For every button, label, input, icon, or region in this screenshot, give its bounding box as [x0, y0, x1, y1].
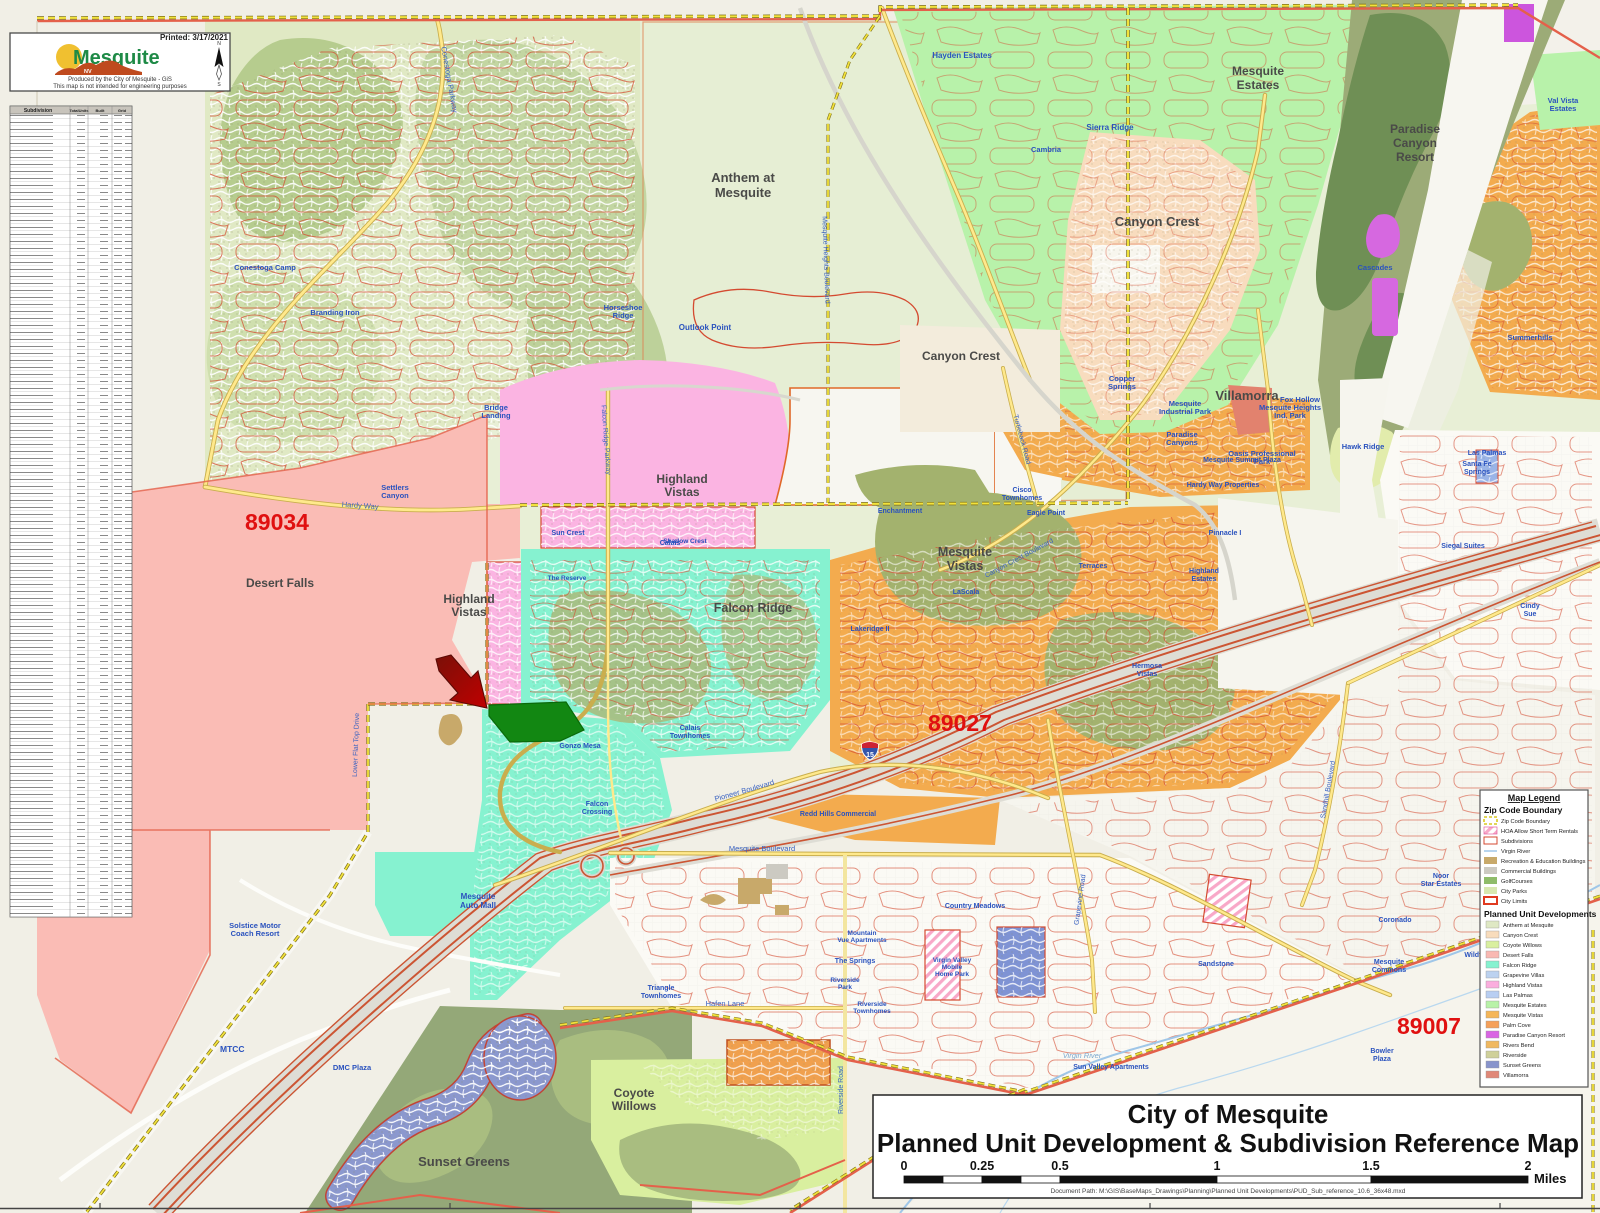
svg-text:Planned Unit Development & Sub: Planned Unit Development & Subdivision R… — [877, 1128, 1579, 1158]
svg-text:0.5: 0.5 — [1051, 1159, 1068, 1173]
svg-text:Crossing: Crossing — [582, 809, 612, 816]
svg-text:Cindy: Cindy — [1520, 603, 1540, 610]
svg-text:1: 1 — [1214, 1159, 1221, 1173]
svg-text:Bowler: Bowler — [1370, 1048, 1394, 1055]
svg-text:Hafen Lane: Hafen Lane — [706, 999, 745, 1008]
svg-text:Country Meadows: Country Meadows — [945, 903, 1005, 910]
svg-text:Falcon Ridge: Falcon Ridge — [714, 601, 793, 615]
svg-text:Highland: Highland — [443, 592, 494, 606]
svg-text:The Springs: The Springs — [835, 958, 876, 965]
svg-text:TotalUnits: TotalUnits — [69, 108, 89, 113]
svg-text:Sue: Sue — [1524, 611, 1537, 618]
svg-text:Hardy Way Properties: Hardy Way Properties — [1187, 482, 1260, 489]
svg-text:Coyote: Coyote — [614, 1086, 655, 1100]
svg-text:Grid: Grid — [118, 108, 127, 113]
svg-text:Calais: Calais — [680, 725, 701, 732]
svg-text:Vistas: Vistas — [451, 605, 486, 619]
svg-text:Townhomes: Townhomes — [1002, 495, 1042, 502]
svg-text:City of Mesquite: City of Mesquite — [1128, 1099, 1329, 1129]
svg-text:Ridge: Ridge — [613, 311, 634, 320]
svg-text:Virgin River: Virgin River — [1501, 849, 1530, 855]
svg-text:Cisco: Cisco — [1012, 487, 1031, 494]
svg-text:Sandstone: Sandstone — [1198, 961, 1234, 968]
svg-text:GolfCourses: GolfCourses — [1501, 879, 1533, 885]
svg-text:Falcon: Falcon — [586, 801, 609, 808]
svg-text:Mesquite Vistas: Mesquite Vistas — [1503, 1013, 1543, 1019]
svg-text:Produced by the City of Mesqui: Produced by the City of Mesquite - GiS — [68, 77, 172, 83]
svg-text:0.25: 0.25 — [970, 1159, 994, 1173]
svg-text:Noor: Noor — [1433, 873, 1450, 880]
svg-text:NV: NV — [84, 69, 92, 75]
svg-text:Villamorra: Villamorra — [1503, 1073, 1529, 1079]
svg-text:Springs: Springs — [1464, 469, 1490, 476]
svg-text:Redd Hills Commercial: Redd Hills Commercial — [800, 811, 876, 818]
svg-text:Canyon Crest: Canyon Crest — [1503, 933, 1538, 939]
svg-text:Falcon Ridge: Falcon Ridge — [1503, 963, 1537, 969]
svg-text:Canyon Crest: Canyon Crest — [922, 349, 1000, 363]
svg-text:Enchantment: Enchantment — [878, 508, 923, 515]
svg-text:Plaza: Plaza — [1373, 1056, 1391, 1063]
svg-text:Anthem at: Anthem at — [711, 170, 775, 185]
svg-text:Document Path: M:\GIS\BaseMaps: Document Path: M:\GIS\BaseMaps_Drawings\… — [1051, 1188, 1406, 1195]
svg-text:Star Estates: Star Estates — [1421, 881, 1462, 888]
svg-text:Las Palmas: Las Palmas — [1468, 450, 1507, 457]
svg-text:Conestoga Camp: Conestoga Camp — [234, 263, 296, 272]
svg-text:MTCC: MTCC — [220, 1044, 245, 1054]
svg-text:Desert Falls: Desert Falls — [1503, 953, 1533, 959]
svg-text:Paradise Canyon Resort: Paradise Canyon Resort — [1503, 1033, 1565, 1039]
svg-text:Zip Code Boundary: Zip Code Boundary — [1484, 805, 1563, 815]
svg-text:Gonzo Mesa: Gonzo Mesa — [559, 743, 600, 750]
svg-text:89027: 89027 — [928, 710, 992, 736]
svg-text:Vistas: Vistas — [1137, 671, 1158, 678]
svg-text:The Reserve: The Reserve — [548, 575, 587, 582]
svg-text:Ind. Park: Ind. Park — [1274, 411, 1307, 420]
svg-text:Riverside: Riverside — [857, 1001, 887, 1008]
svg-text:City Limits: City Limits — [1501, 899, 1527, 905]
svg-text:Resort: Resort — [1396, 150, 1434, 164]
svg-text:Rivers Bend: Rivers Bend — [1503, 1043, 1534, 1049]
svg-text:This map is not intended for e: This map is not intended for engineering… — [53, 84, 186, 90]
svg-text:Mesquite: Mesquite — [461, 892, 496, 901]
svg-text:HOA Allow Short Term Rentals: HOA Allow Short Term Rentals — [1501, 829, 1578, 835]
svg-text:Mesquite: Mesquite — [938, 545, 992, 559]
svg-text:Map Legend: Map Legend — [1508, 793, 1561, 803]
svg-text:Canyon Crest: Canyon Crest — [1115, 214, 1200, 229]
svg-text:Mountain: Mountain — [848, 930, 877, 937]
svg-text:Palm Cove: Palm Cove — [1503, 1023, 1531, 1029]
svg-text:Highland Vistas: Highland Vistas — [1503, 983, 1543, 989]
svg-text:Estates: Estates — [1192, 576, 1217, 583]
svg-text:Townhomes: Townhomes — [670, 733, 710, 740]
svg-text:Cambria: Cambria — [1031, 145, 1062, 154]
svg-text:Triangle: Triangle — [648, 985, 675, 992]
svg-text:Virgin River: Virgin River — [1063, 1051, 1102, 1060]
svg-text:Shadow Crest: Shadow Crest — [663, 538, 707, 545]
svg-text:15: 15 — [866, 752, 874, 759]
svg-text:Eagle Point: Eagle Point — [1027, 510, 1066, 517]
svg-text:Canyon: Canyon — [1393, 136, 1437, 150]
svg-text:Auto Mall: Auto Mall — [460, 901, 496, 910]
svg-text:Hermosa: Hermosa — [1132, 663, 1162, 670]
svg-text:Coach Resort: Coach Resort — [231, 929, 280, 938]
svg-text:Canyons: Canyons — [1166, 438, 1198, 447]
svg-text:89034: 89034 — [245, 509, 309, 535]
svg-text:Cascades: Cascades — [1357, 263, 1392, 272]
svg-text:1.5: 1.5 — [1362, 1159, 1379, 1173]
svg-text:Villamorra: Villamorra — [1215, 388, 1279, 403]
svg-text:N: N — [217, 41, 221, 47]
svg-text:Las Palmas: Las Palmas — [1503, 993, 1533, 999]
svg-text:89007: 89007 — [1397, 1013, 1461, 1039]
svg-text:Summerhills: Summerhills — [1507, 333, 1552, 342]
svg-text:Mesquite Boulevard: Mesquite Boulevard — [729, 844, 795, 853]
svg-text:Built: Built — [96, 108, 106, 113]
svg-text:Subdivision: Subdivision — [24, 108, 52, 114]
svg-text:Canyon: Canyon — [381, 491, 409, 500]
svg-text:Grapevine Villas: Grapevine Villas — [1503, 973, 1544, 979]
svg-text:Vistas: Vistas — [947, 559, 984, 573]
svg-text:2: 2 — [1525, 1159, 1532, 1173]
svg-text:Highland: Highland — [656, 472, 707, 486]
svg-text:Park: Park — [838, 984, 852, 991]
svg-text:Mesquite: Mesquite — [1374, 959, 1404, 966]
svg-text:Mobile: Mobile — [942, 964, 963, 971]
svg-text:0: 0 — [901, 1159, 908, 1173]
svg-text:Coronado: Coronado — [1378, 917, 1411, 924]
svg-text:Coyote Willows: Coyote Willows — [1503, 943, 1542, 949]
svg-text:Recreation & Education Buildin: Recreation & Education Buildings — [1501, 859, 1586, 865]
svg-text:Vistas: Vistas — [664, 485, 699, 499]
svg-text:Miles: Miles — [1534, 1171, 1567, 1186]
svg-text:Estates: Estates — [1237, 78, 1280, 92]
svg-text:Terraces: Terraces — [1079, 563, 1108, 570]
svg-text:Zip Code Boundary: Zip Code Boundary — [1501, 819, 1550, 825]
svg-text:DMC Plaza: DMC Plaza — [333, 1063, 372, 1072]
svg-text:Santa Fe: Santa Fe — [1462, 461, 1491, 468]
svg-text:Townhomes: Townhomes — [641, 993, 681, 1000]
svg-text:Mesquite: Mesquite — [1232, 64, 1284, 78]
svg-text:Industrial Park: Industrial Park — [1159, 407, 1212, 416]
svg-text:Pinnacle I: Pinnacle I — [1209, 530, 1242, 537]
svg-text:Sierra Ridge: Sierra Ridge — [1086, 123, 1134, 132]
svg-text:Desert Falls: Desert Falls — [246, 576, 314, 590]
svg-text:Landing: Landing — [481, 411, 511, 420]
svg-text:Subdivisions: Subdivisions — [1501, 839, 1533, 845]
svg-text:Virgin Valley: Virgin Valley — [933, 957, 972, 964]
svg-text:Sun Valley Apartments: Sun Valley Apartments — [1073, 1064, 1149, 1071]
svg-text:Sun Crest: Sun Crest — [551, 530, 585, 537]
svg-text:Outlook Point: Outlook Point — [679, 323, 732, 332]
svg-text:Commercial Buildings: Commercial Buildings — [1501, 869, 1556, 875]
svg-text:Anthem at Mesquite: Anthem at Mesquite — [1503, 923, 1554, 929]
svg-text:Hayden Estates: Hayden Estates — [932, 51, 992, 60]
svg-text:Paradise: Paradise — [1390, 122, 1440, 136]
svg-text:Commons: Commons — [1372, 967, 1406, 974]
svg-text:Springs: Springs — [1108, 382, 1136, 391]
svg-text:Sunset Greens: Sunset Greens — [1503, 1063, 1541, 1069]
svg-text:Vue Apartments: Vue Apartments — [837, 937, 887, 944]
svg-text:Branding Iron: Branding Iron — [310, 308, 360, 317]
svg-text:Riverside: Riverside — [1503, 1053, 1527, 1059]
svg-text:Planned Unit Developments: Planned Unit Developments — [1484, 909, 1597, 919]
svg-text:Sunset Greens: Sunset Greens — [418, 1154, 510, 1169]
svg-text:Riverside: Riverside — [830, 977, 860, 984]
svg-text:Siegal Suites: Siegal Suites — [1441, 543, 1485, 550]
svg-text:Townhomes: Townhomes — [853, 1008, 891, 1015]
svg-text:Home Park: Home Park — [935, 971, 969, 978]
svg-text:Lakeridge II: Lakeridge II — [851, 626, 890, 633]
svg-text:Willows: Willows — [612, 1099, 657, 1113]
svg-text:Estates: Estates — [1550, 104, 1577, 113]
svg-text:Highland: Highland — [1189, 568, 1219, 575]
svg-text:City Parks: City Parks — [1501, 889, 1527, 895]
svg-text:Hawk Ridge: Hawk Ridge — [1342, 442, 1385, 451]
svg-text:LaScala: LaScala — [953, 589, 980, 596]
svg-text:Riverside Road: Riverside Road — [838, 1066, 845, 1114]
svg-text:Mesquite Summit Plaza: Mesquite Summit Plaza — [1203, 457, 1281, 464]
svg-text:Mesquite: Mesquite — [715, 185, 771, 200]
svg-text:Mesquite Estates: Mesquite Estates — [1503, 1003, 1547, 1009]
svg-text:Fox Hollow: Fox Hollow — [1280, 395, 1320, 404]
